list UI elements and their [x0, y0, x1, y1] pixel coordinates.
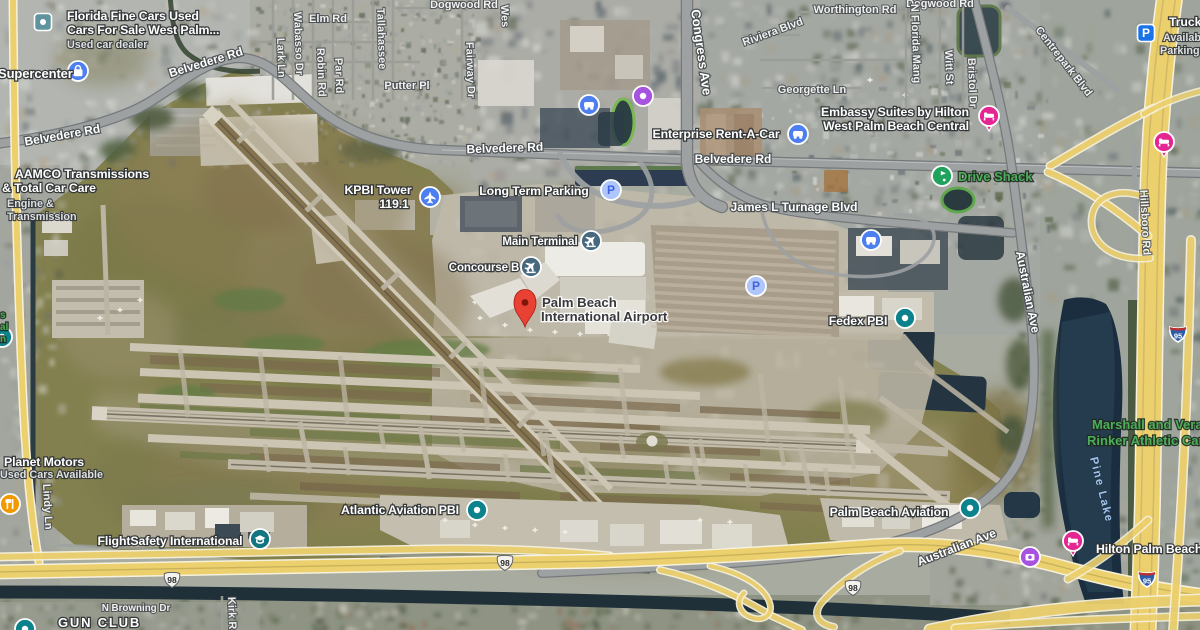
- svg-text:Witt St: Witt St: [942, 50, 955, 85]
- svg-text:Transmission: Transmission: [7, 211, 77, 223]
- svg-text:Georgette Ln: Georgette Ln: [778, 84, 847, 96]
- svg-text:Par Rd: Par Rd: [332, 58, 345, 94]
- svg-text:Concourse B: Concourse B: [449, 262, 519, 274]
- svg-text:P: P: [1142, 26, 1150, 40]
- svg-text:West Palm Beach Central: West Palm Beach Central: [823, 119, 969, 133]
- svg-text:P: P: [752, 279, 760, 293]
- svg-text:n: n: [0, 334, 6, 345]
- svg-text:Planet Motors: Planet Motors: [4, 455, 84, 469]
- svg-text:Rinker Athletic Cam: Rinker Athletic Cam: [1087, 433, 1200, 448]
- svg-text:Cars For Sale West Palm...: Cars For Sale West Palm...: [67, 23, 219, 37]
- svg-text:James L Turnage Blvd: James L Turnage Blvd: [731, 200, 858, 214]
- svg-text:Availab: Availab: [1163, 32, 1200, 44]
- svg-text:Worthington Rd: Worthington Rd: [814, 4, 897, 16]
- svg-text:Florida Fine Cars Used: Florida Fine Cars Used: [67, 9, 199, 23]
- svg-text:Truck: Truck: [1169, 15, 1200, 29]
- svg-text:Used Cars Available: Used Cars Available: [0, 469, 103, 481]
- svg-text:Long Term Parking: Long Term Parking: [479, 184, 588, 198]
- svg-text:Fairway Dr: Fairway Dr: [463, 42, 477, 99]
- svg-text:AAMCO Transmissions: AAMCO Transmissions: [15, 167, 149, 181]
- svg-text:s: s: [0, 310, 6, 321]
- svg-text:Bristol Dr: Bristol Dr: [965, 58, 979, 109]
- svg-text:119.1: 119.1: [379, 197, 409, 211]
- svg-text:98: 98: [848, 583, 858, 593]
- svg-text:GUN CLUB: GUN CLUB: [58, 615, 141, 630]
- svg-text:Hilton Palm Beach: Hilton Palm Beach: [1096, 542, 1200, 556]
- svg-text:Wabasso Dr: Wabasso Dr: [291, 12, 305, 76]
- svg-text:Parking: Parking: [1160, 45, 1200, 57]
- svg-text:Wes: Wes: [498, 5, 511, 28]
- svg-text:International Airport: International Airport: [541, 309, 668, 324]
- svg-text:Embassy Suites by Hilton: Embassy Suites by Hilton: [821, 105, 969, 119]
- svg-text:Supercenter: Supercenter: [0, 66, 73, 81]
- svg-text:Engine &: Engine &: [7, 198, 54, 210]
- svg-text:Dogwood Rd: Dogwood Rd: [430, 0, 498, 11]
- svg-text:Tallahassee: Tallahassee: [374, 8, 388, 70]
- svg-text:Putter Pl: Putter Pl: [384, 80, 429, 92]
- svg-text:Elm Rd: Elm Rd: [309, 13, 347, 25]
- svg-text:98: 98: [500, 558, 510, 568]
- svg-text:Drive Shack: Drive Shack: [958, 169, 1033, 184]
- svg-text:Main Terminal: Main Terminal: [502, 236, 577, 248]
- svg-text:KPBI Tower: KPBI Tower: [344, 183, 411, 197]
- svg-text:Kirk Rd: Kirk Rd: [225, 597, 238, 630]
- svg-text:Lindy Ln: Lindy Ln: [40, 484, 54, 531]
- svg-text:Used car dealer: Used car dealer: [67, 39, 148, 51]
- svg-text:Palm Beach: Palm Beach: [542, 295, 617, 310]
- svg-text:FlightSafety International: FlightSafety International: [98, 534, 243, 548]
- svg-text:Atlantic Aviation PBI: Atlantic Aviation PBI: [341, 503, 459, 517]
- svg-text:Marshall and Vera: Marshall and Vera: [1092, 417, 1200, 432]
- svg-text:95: 95: [1143, 577, 1151, 586]
- svg-text:Belvedere Rd: Belvedere Rd: [466, 140, 543, 157]
- svg-text:P: P: [607, 183, 615, 197]
- svg-text:al: al: [0, 322, 9, 333]
- svg-text:95: 95: [1174, 332, 1182, 341]
- svg-text:Fedex PBI: Fedex PBI: [829, 314, 888, 328]
- svg-text:N Browning Dr: N Browning Dr: [102, 603, 171, 614]
- svg-text:Palm Beach Aviation: Palm Beach Aviation: [830, 505, 949, 519]
- svg-text:Enterprise Rent-A-Car: Enterprise Rent-A-Car: [652, 127, 779, 141]
- svg-text:Belvedere Rd: Belvedere Rd: [695, 152, 772, 166]
- svg-text:Lark Ln: Lark Ln: [274, 38, 287, 78]
- svg-text:Robin Rd: Robin Rd: [314, 48, 328, 97]
- svg-text:98: 98: [167, 575, 177, 585]
- svg-text:& Total Car Care: & Total Car Care: [2, 181, 96, 195]
